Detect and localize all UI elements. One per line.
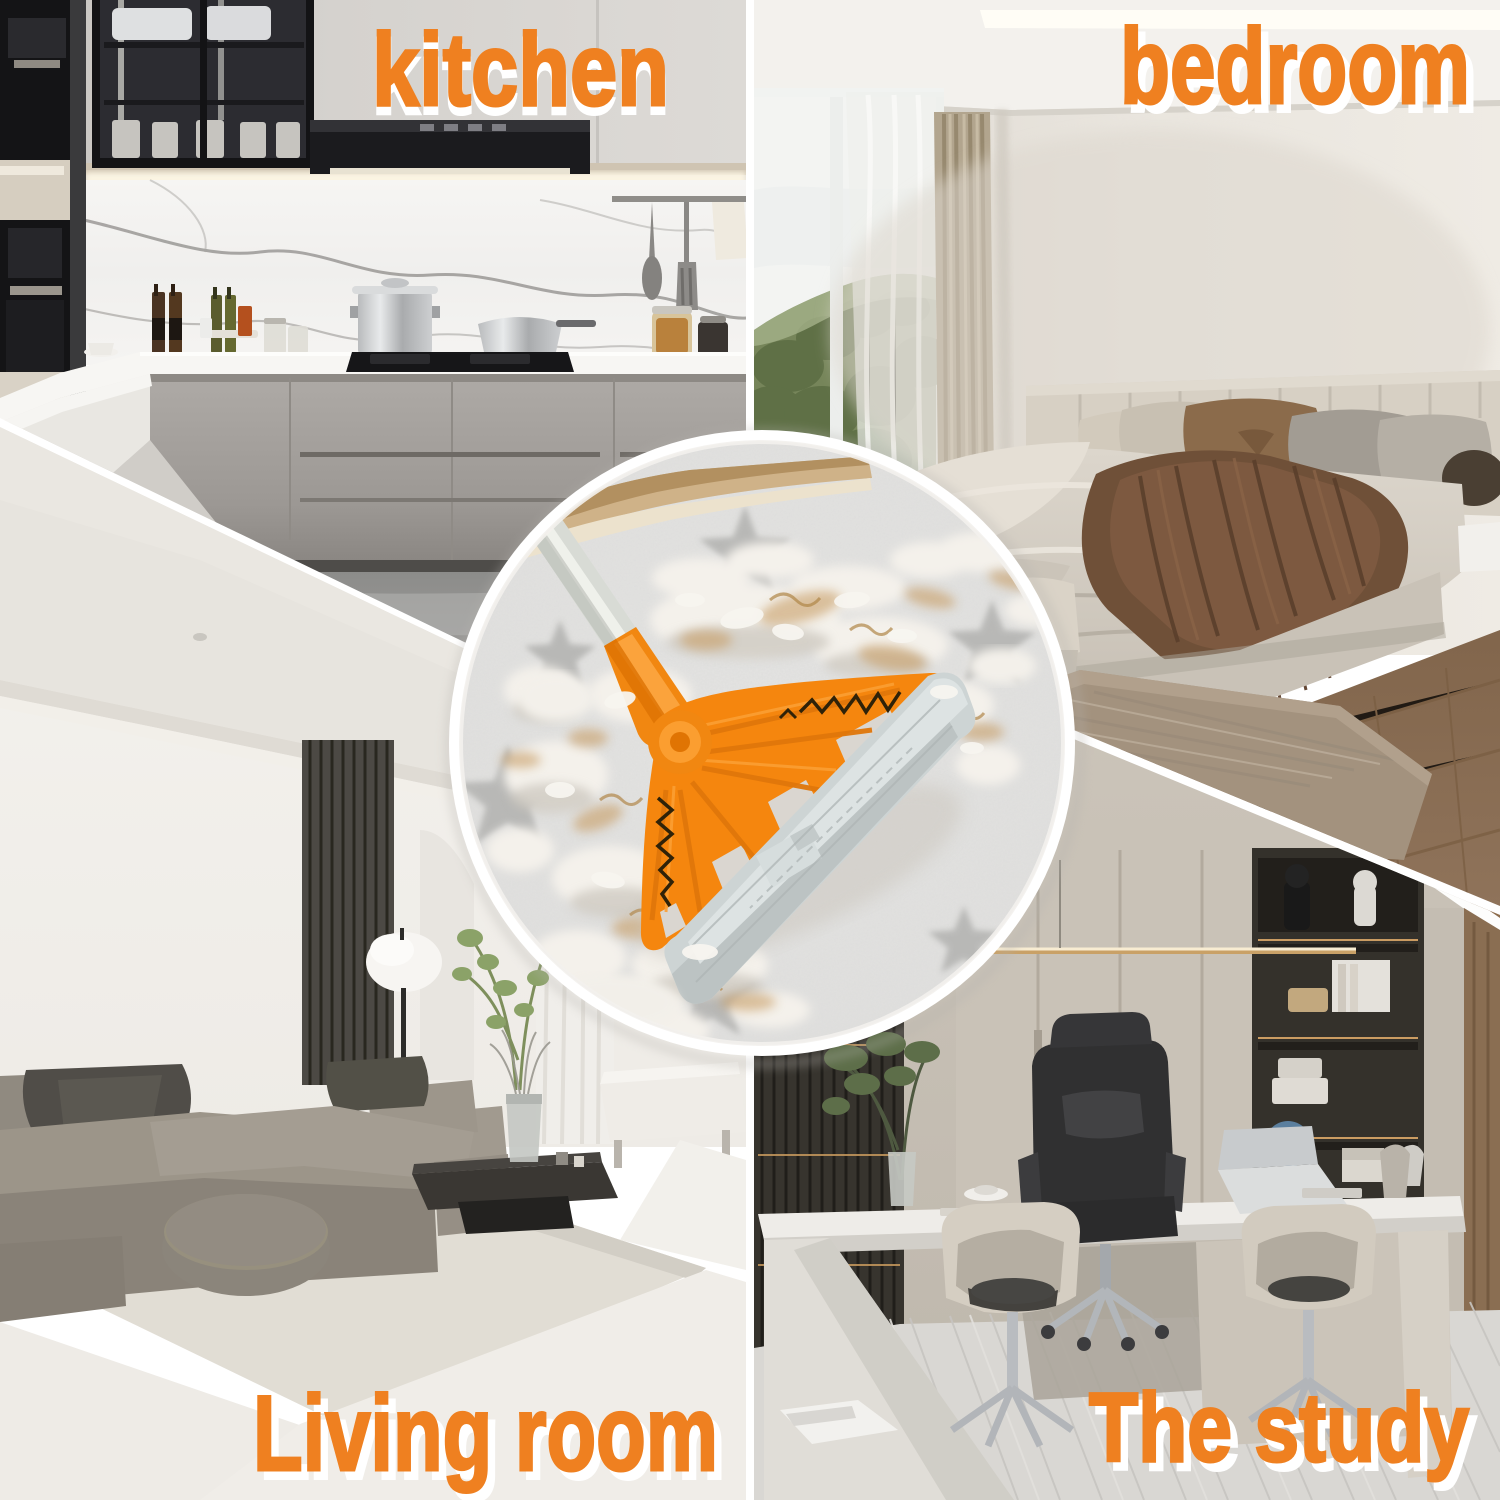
svg-text:kitchen: kitchen	[372, 12, 669, 127]
svg-text:bedroom: bedroom	[1120, 6, 1470, 126]
svg-text:Living room: Living room	[253, 1373, 718, 1493]
svg-text:The study: The study	[1089, 1373, 1469, 1482]
